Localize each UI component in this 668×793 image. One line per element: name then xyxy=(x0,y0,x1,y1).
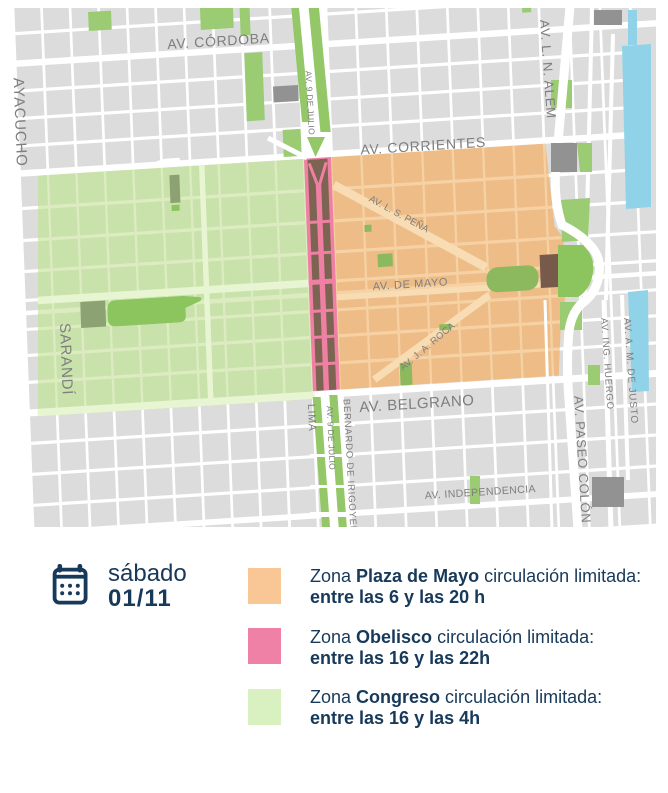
svg-text:SARANDÍ: SARANDÍ xyxy=(56,323,76,396)
svg-text:AYACUCHO: AYACUCHO xyxy=(10,77,30,167)
svg-text:LIMA: LIMA xyxy=(305,404,318,432)
